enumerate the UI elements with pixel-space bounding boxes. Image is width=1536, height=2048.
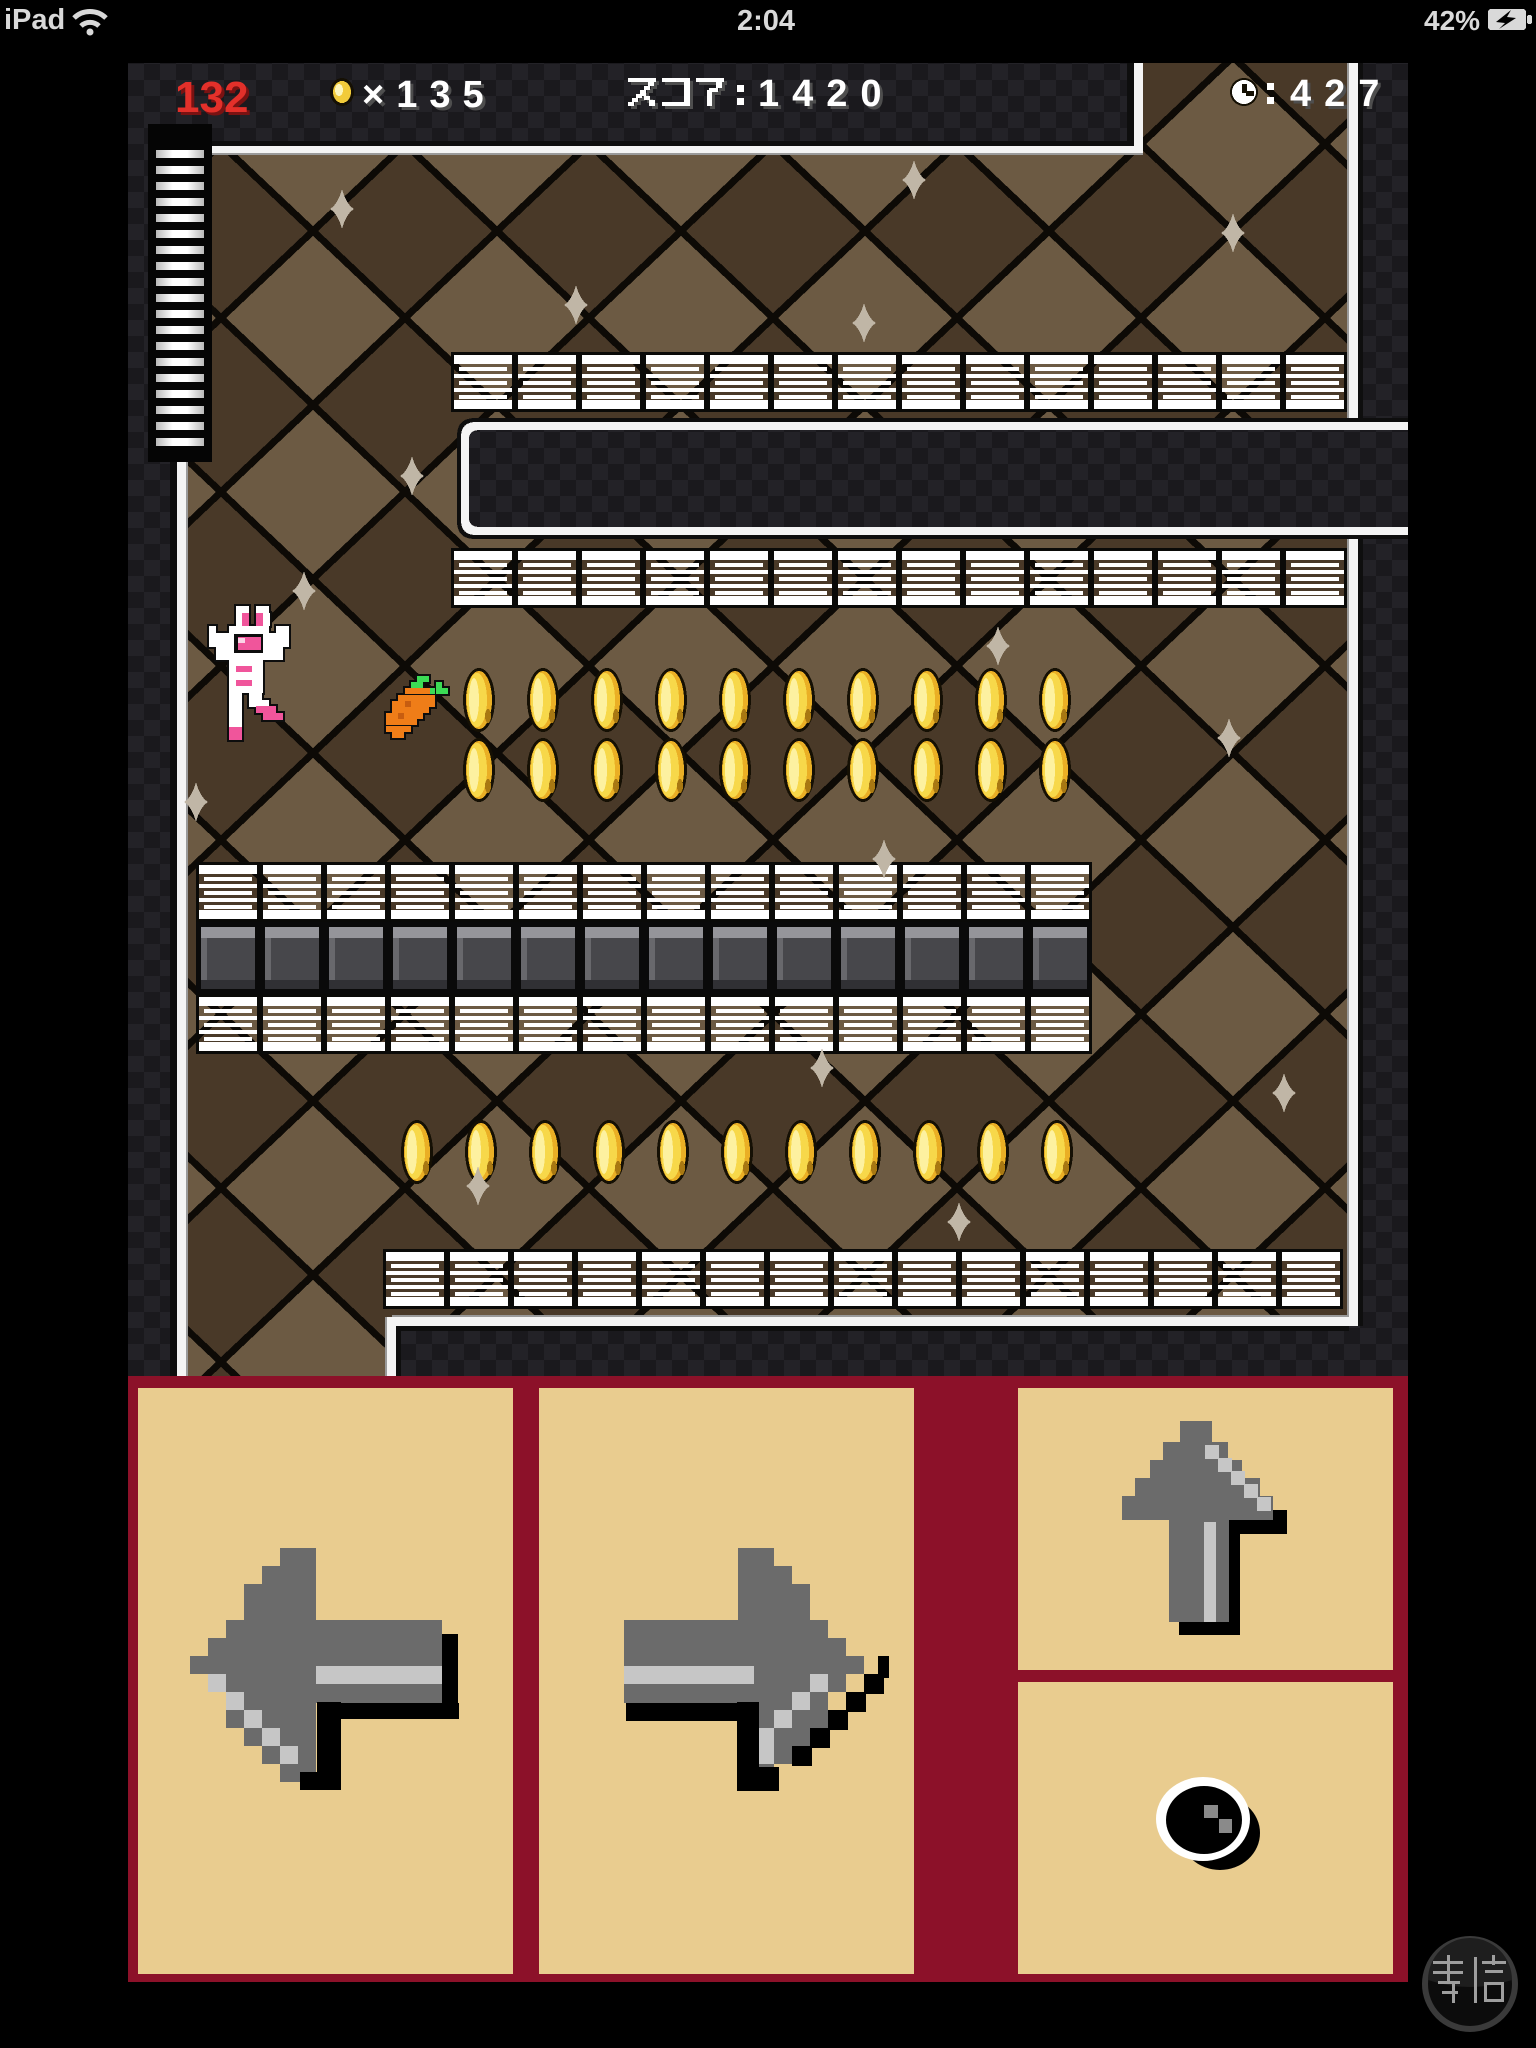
svg-text:427: 427	[1290, 73, 1392, 115]
svg-text:iPad: iPad	[4, 4, 65, 36]
svg-text:2:04: 2:04	[737, 5, 795, 37]
svg-text:1420: 1420	[758, 73, 895, 115]
svg-text:42%: 42%	[1424, 5, 1480, 36]
svg-text:×135: ×135	[362, 74, 496, 116]
svg-text:132: 132	[175, 73, 248, 122]
